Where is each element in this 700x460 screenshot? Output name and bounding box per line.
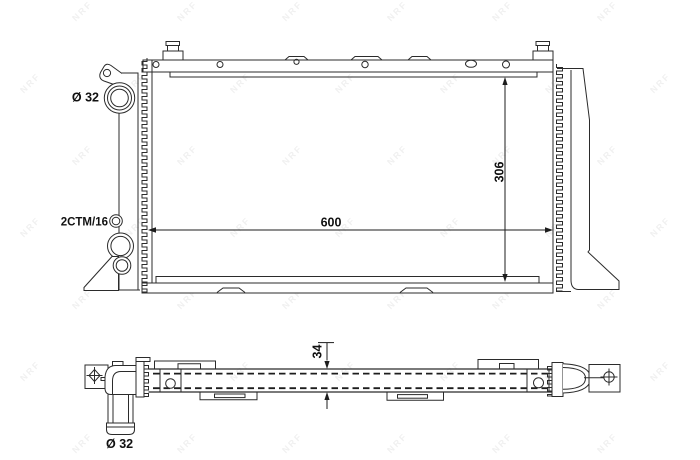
top-rail: [143, 57, 553, 73]
right-mount-bracket: [589, 365, 620, 393]
rail-bump: [351, 57, 382, 61]
mounting-pin-left: [163, 42, 183, 61]
bar-hole-right: [534, 378, 544, 388]
right-end-assembly: [548, 363, 621, 397]
rail-bump: [408, 57, 431, 61]
upper-port-label: Ø 32: [72, 91, 99, 105]
tab-hole: [103, 69, 110, 76]
left-end-zigzag: [144, 362, 149, 397]
width-dim-label: 600: [321, 216, 342, 230]
inlet-connector: [105, 362, 136, 435]
mounting-pin-right: [533, 42, 553, 61]
depth-dim-label: 34: [311, 345, 325, 359]
bottom-tab-right: [387, 392, 444, 400]
core-bar: [149, 369, 553, 392]
height-dimension: 306: [493, 77, 508, 282]
left-gasket-zigzag: [142, 58, 147, 292]
bottom-tab-left: [200, 392, 257, 400]
depth-dimension: 34: [311, 343, 335, 409]
height-dim-label: 306: [493, 162, 507, 183]
right-gasket-zigzag: [557, 64, 563, 291]
top-bracket-right: [478, 360, 539, 370]
lower-bracket: [84, 257, 119, 291]
thread-code-label: 2CTM/16: [61, 217, 108, 229]
right-end-zigzag: [548, 363, 553, 396]
bottom-view: 34 Ø 32: [85, 343, 620, 451]
left-end-plate: [136, 358, 150, 398]
right-side-bracket: [556, 69, 619, 292]
front-view: 600 306 Ø 32 2CTM/16: [61, 42, 619, 294]
radiator-technical-drawing: NRFNRFNRFNRFNRFNRFNRFNRFNRFNRFNRFNRFNRFN…: [0, 0, 700, 460]
width-dimension: 600: [148, 216, 553, 233]
bar-hole-left: [166, 379, 176, 389]
top-bracket-left: [155, 361, 216, 369]
drawing-canvas: 600 306 Ø 32 2CTM/16: [0, 0, 700, 460]
lower-port-label: Ø 32: [106, 437, 133, 451]
